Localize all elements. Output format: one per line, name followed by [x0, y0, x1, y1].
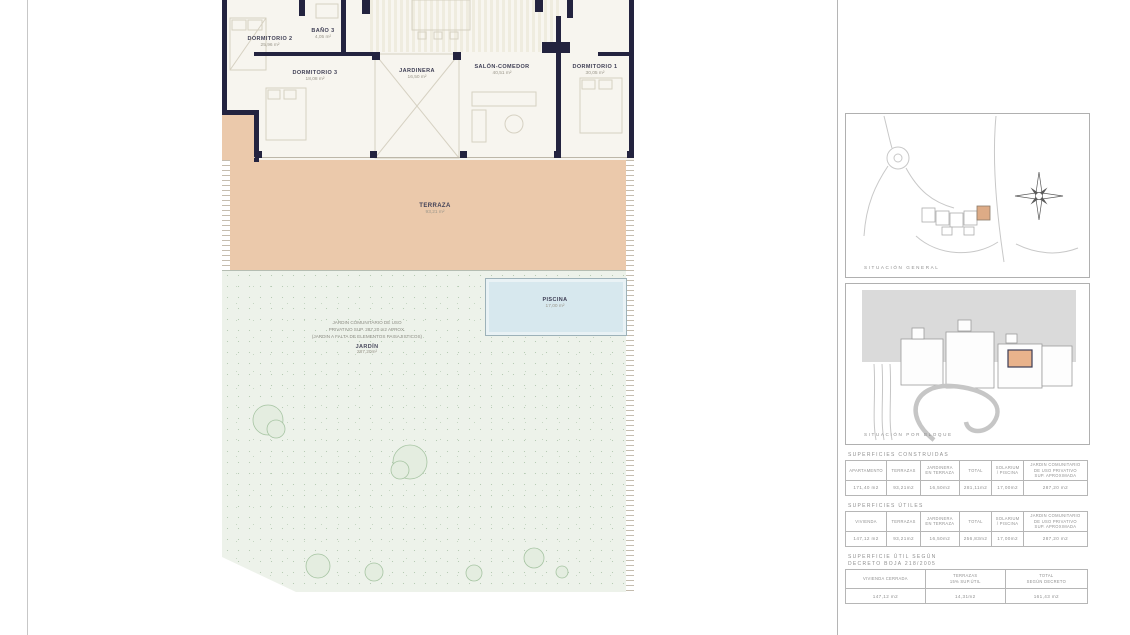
- table-row: 147,12 m2 14,31m2 161,43 m2: [846, 589, 1088, 604]
- room-area: 40,51 m²: [454, 71, 550, 77]
- room-name: TERRAZA: [395, 202, 475, 210]
- building-footprint: [958, 320, 971, 331]
- col-header: TERRAZAS: [887, 512, 921, 532]
- road-line: [874, 364, 876, 440]
- tree-icon: [267, 420, 285, 438]
- col-header: APARTAMENTO: [846, 461, 887, 481]
- drawing-sheet: PISCINA 17,00 m²: [0, 0, 1130, 635]
- building-footprint: [1006, 334, 1017, 343]
- building-footprint: [912, 328, 924, 339]
- tree-icon: [466, 565, 482, 581]
- room-label-bano-3: BAÑO 3 4,05 m²: [306, 28, 340, 42]
- tree-icon: [524, 548, 544, 568]
- site-map-bloque: [846, 284, 1087, 442]
- sheet-left-border: [27, 0, 28, 635]
- room-label-dormitorio-1: DORMITORIO 1 30,05 m²: [562, 64, 628, 78]
- wall: [372, 52, 380, 60]
- wall: [567, 0, 573, 18]
- column: [554, 151, 561, 158]
- wall: [254, 52, 376, 56]
- building-footprint: [964, 211, 977, 225]
- road-line: [906, 168, 954, 208]
- building-footprint: [942, 227, 952, 235]
- bath-fixture-outline: [316, 4, 338, 18]
- facade-line: [254, 157, 634, 158]
- table-title-utiles: SUPERFICIES ÚTILES: [848, 503, 924, 510]
- room-area: 287,20m²: [262, 350, 472, 355]
- col-header: JARDINERA EN TERRAZA: [921, 461, 960, 481]
- cell: 147,12 m2: [846, 531, 887, 546]
- road-line: [994, 116, 1004, 262]
- wall: [453, 52, 461, 60]
- table-header-row: APARTAMENTO TERRAZAS JARDINERA EN TERRAZ…: [846, 461, 1088, 481]
- col-header: JARDIN COMUNITARIO DE USO PRIVATIVO SUP.…: [1023, 461, 1087, 481]
- tree-icon: [391, 461, 409, 479]
- coffee-table-outline: [505, 115, 523, 133]
- building-footprint: [936, 211, 949, 225]
- cell: 287,20 m2: [1023, 480, 1087, 495]
- terrace-label: TERRAZA 93,21 m²: [395, 202, 475, 217]
- room-label-salon-comedor: SALÓN-COMEDOR 40,51 m²: [454, 64, 550, 78]
- wall: [222, 0, 227, 114]
- road-line: [882, 364, 884, 440]
- dining-table-outline: [412, 0, 470, 30]
- col-header: JARDIN COMUNITARIO DE USO PRIVATIVO SUP.…: [1023, 512, 1087, 532]
- wall: [556, 16, 561, 156]
- tree-icon: [306, 554, 330, 578]
- room-label-dormitorio-3: DORMITORIO 3 18,08 m²: [280, 70, 350, 84]
- column: [627, 151, 634, 158]
- room-area: 18,08 m²: [280, 77, 350, 83]
- floor-plan: PISCINA 17,00 m²: [222, 0, 642, 600]
- room-label-jardinera: JARDINERA 16,50 m²: [382, 68, 452, 82]
- building-footprint: [1042, 346, 1072, 386]
- map-label: SITUACIÓN POR BLOQUE: [864, 432, 953, 437]
- road-line: [884, 116, 892, 148]
- tree-icon: [556, 566, 568, 578]
- wall: [341, 0, 346, 54]
- table-header-row: VIVIENDA TERRAZAS JARDINERA EN TERRAZA T…: [846, 512, 1088, 532]
- room-area: 30,05 m²: [562, 71, 628, 77]
- roundabout-icon: [887, 147, 909, 169]
- roundabout-icon: [894, 154, 902, 162]
- cell: 93,21m2: [887, 531, 921, 546]
- tree-icon: [365, 563, 383, 581]
- wall: [362, 0, 370, 14]
- cell: 17,00m2: [992, 480, 1023, 495]
- building-footprint: [922, 208, 935, 222]
- column: [370, 151, 377, 158]
- pergola-hatch-left: [222, 160, 230, 270]
- table-header-row: VIVIENDA CERRADA TERRAZAS 15% SUP.ÚTIL T…: [846, 570, 1088, 589]
- garden-note: JARDIN COMUNITARIO DE USO PRIVATIVO SUP.…: [262, 320, 472, 355]
- room-area: 16,50 m²: [382, 75, 452, 81]
- sofa-outline: [472, 92, 536, 106]
- column: [460, 151, 467, 158]
- site-map-general: [846, 114, 1087, 275]
- bed-outline: [266, 88, 306, 140]
- col-header: TERRAZAS 15% SUP.ÚTIL: [925, 570, 1005, 589]
- building-footprint: [901, 339, 943, 385]
- table-superficies-utiles: VIVIENDA TERRAZAS JARDINERA EN TERRAZA T…: [845, 511, 1088, 547]
- col-header: SOLARIUM / PISCINA: [992, 461, 1023, 481]
- col-header: VIVIENDA CERRADA: [846, 570, 926, 589]
- table-superficies-construidas: APARTAMENTO TERRAZAS JARDINERA EN TERRAZ…: [845, 460, 1088, 496]
- sofa-outline: [472, 110, 486, 142]
- table-row: 147,12 m2 93,21m2 16,50m2 256,83m2 17,00…: [846, 531, 1088, 546]
- col-header: TOTAL: [959, 512, 992, 532]
- cell: 16,50m2: [921, 531, 960, 546]
- garden-note-text: JARDIN COMUNITARIO DE USO PRIVATIVO SUP.…: [262, 320, 472, 341]
- road-line: [890, 364, 892, 440]
- road-line: [864, 166, 888, 236]
- table-title-decreto: SUPERFICIE ÚTIL SEGÚN DECRETO BOJA 218/2…: [848, 554, 937, 568]
- col-header: TOTAL: [959, 461, 992, 481]
- cell: 147,12 m2: [846, 589, 926, 604]
- road-line: [916, 236, 998, 253]
- room-label-dormitorio-2: DORMITORIO 2 25,96 m²: [230, 36, 310, 50]
- column: [255, 151, 262, 158]
- building-footprint: [964, 227, 974, 235]
- table-title-construidas: SUPERFICIES CONSTRUIDAS: [848, 452, 949, 459]
- map-label: SITUACIÓN GENERAL: [864, 265, 939, 270]
- highlighted-unit: [1008, 350, 1032, 367]
- room-area: 17,00 m²: [486, 304, 624, 310]
- cell: 14,31m2: [925, 589, 1005, 604]
- pool-label: PISCINA 17,00 m²: [486, 297, 624, 311]
- road-line: [1016, 244, 1078, 253]
- pool: PISCINA 17,00 m²: [485, 278, 627, 336]
- col-header: VIVIENDA: [846, 512, 887, 532]
- table-row: 171,40 m2 93,21m2 16,50m2 281,11m2 17,00…: [846, 480, 1088, 495]
- room-area: 25,96 m²: [230, 43, 310, 49]
- cell: 281,11m2: [959, 480, 992, 495]
- highlighted-unit: [977, 206, 990, 220]
- map-situacion-bloque: SITUACIÓN POR BLOQUE: [845, 283, 1090, 445]
- wall: [535, 0, 543, 12]
- cell: 256,83m2: [959, 531, 992, 546]
- titleblock-divider: [837, 0, 838, 635]
- col-header: TERRAZAS: [887, 461, 921, 481]
- wall: [542, 42, 570, 53]
- wall: [299, 0, 305, 16]
- building-footprint: [946, 332, 994, 388]
- col-header: TOTAL SEGÚN DECRETO: [1005, 570, 1087, 589]
- bed-outline: [580, 78, 622, 133]
- col-header: SOLARIUM / PISCINA: [992, 512, 1023, 532]
- wall: [629, 0, 634, 158]
- building-footprint: [950, 213, 963, 227]
- cell: 171,40 m2: [846, 480, 887, 495]
- cell: 16,50m2: [921, 480, 960, 495]
- garden-terrace-boundary: [222, 270, 626, 271]
- compass-rose-icon: [1015, 172, 1063, 220]
- cell: 287,20 m2: [1023, 531, 1087, 546]
- col-header: JARDINERA EN TERRAZA: [921, 512, 960, 532]
- cell: 17,00m2: [992, 531, 1023, 546]
- cell: 161,43 m2: [1005, 589, 1087, 604]
- table-superficie-decreto: VIVIENDA CERRADA TERRAZAS 15% SUP.ÚTIL T…: [845, 569, 1088, 604]
- pergola-hatch-right: [626, 160, 634, 592]
- room-area: 93,21 m²: [395, 210, 475, 216]
- map-situacion-general: SITUACIÓN GENERAL: [845, 113, 1090, 278]
- room-area: 4,05 m²: [306, 35, 340, 41]
- cell: 93,21m2: [887, 480, 921, 495]
